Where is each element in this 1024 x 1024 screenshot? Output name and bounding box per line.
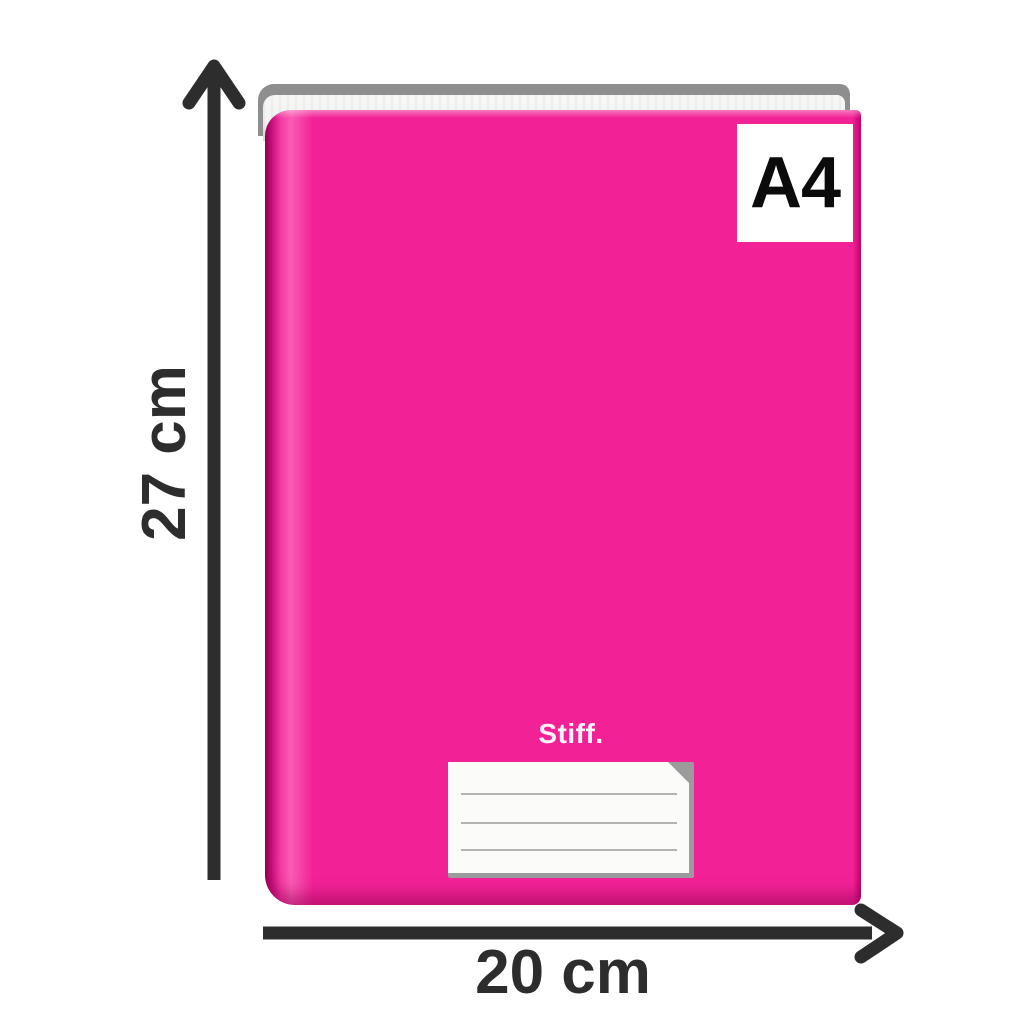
- notebook-front-cover: A4 Stiff.: [265, 110, 861, 905]
- name-plate-line: [461, 849, 677, 851]
- name-plate-face: [448, 762, 689, 873]
- width-dimension-label: 20 cm: [433, 937, 693, 1009]
- height-dimension-label: 27 cm: [130, 343, 200, 563]
- name-plate-line: [461, 793, 677, 795]
- product-dimension-diagram: A4 Stiff. 27 cm 20 cm: [0, 0, 1024, 1024]
- brand-logo: Stiff.: [461, 718, 681, 750]
- name-plate-line: [461, 822, 677, 824]
- name-plate: [448, 762, 694, 878]
- size-badge: A4: [737, 124, 853, 242]
